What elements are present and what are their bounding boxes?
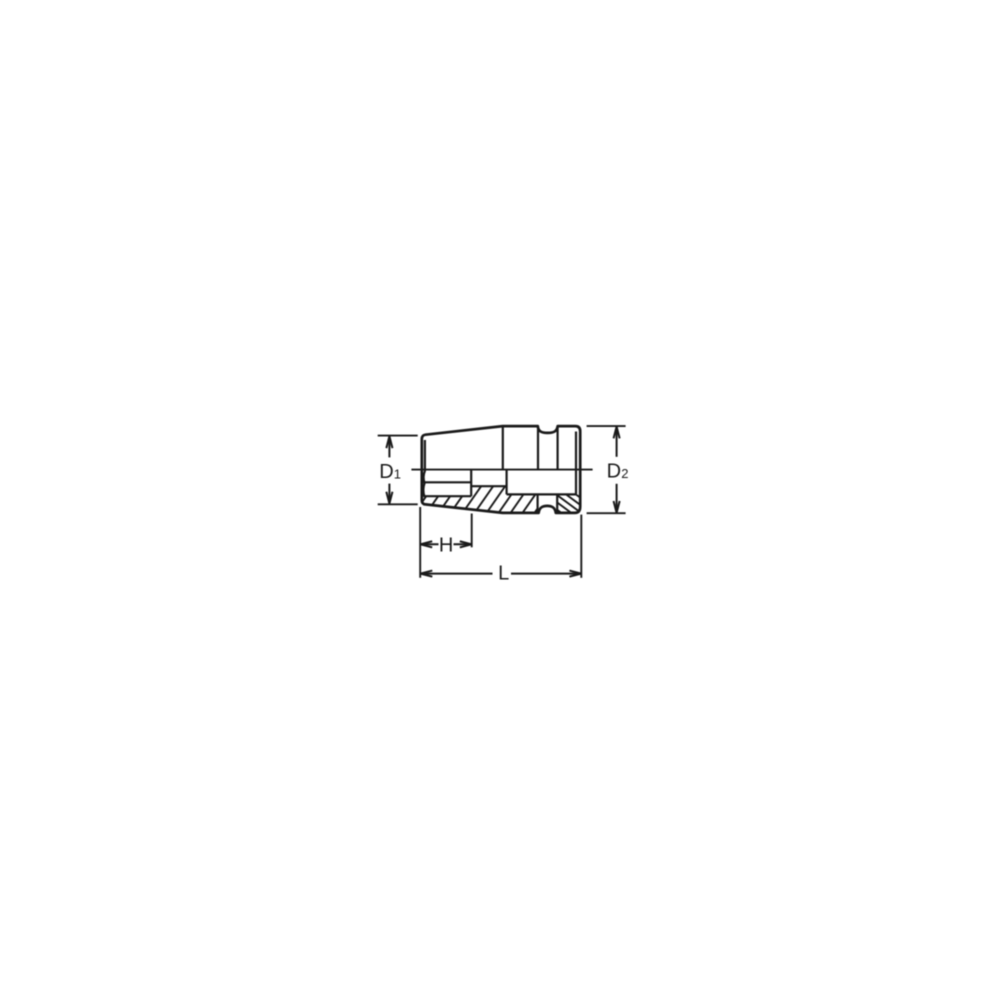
svg-text:D: D [607,460,621,482]
svg-text:D: D [379,461,393,483]
svg-text:1: 1 [394,467,401,482]
svg-text:2: 2 [621,466,628,481]
svg-text:L: L [498,563,509,585]
svg-text:H: H [439,535,453,557]
